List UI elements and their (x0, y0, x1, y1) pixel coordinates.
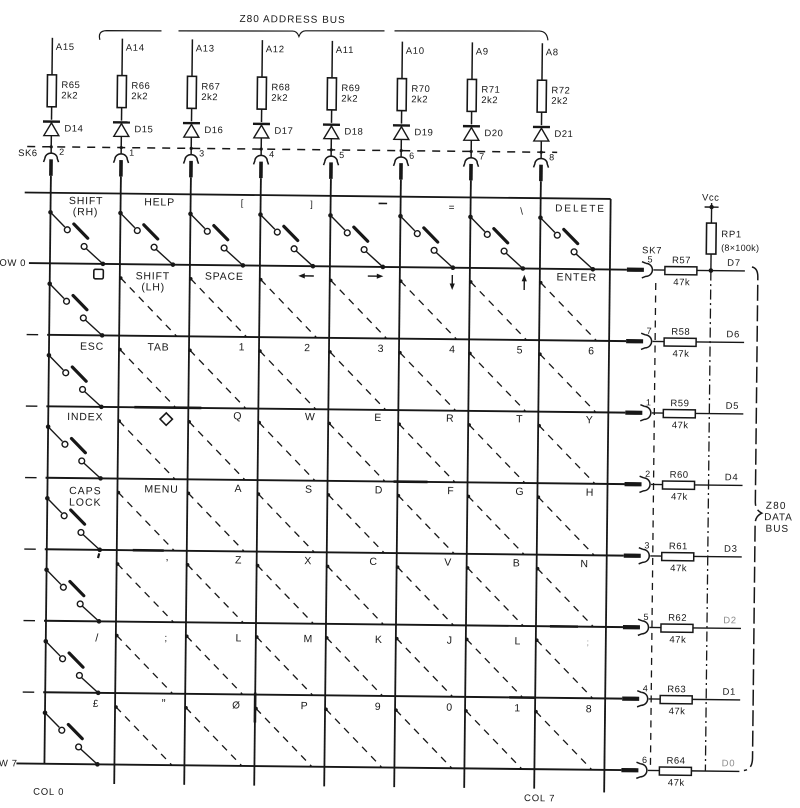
svg-text:1: 1 (239, 341, 246, 353)
svg-text:C: C (369, 556, 378, 568)
svg-text:R61: R61 (669, 541, 688, 552)
svg-text:R58: R58 (671, 327, 690, 338)
svg-text:SK6: SK6 (18, 148, 38, 159)
svg-text:N: N (580, 558, 589, 570)
svg-text:A8: A8 (546, 47, 559, 58)
svg-text:H: H (586, 487, 595, 499)
svg-text:Z80 ADDRESS BUS: Z80 ADDRESS BUS (239, 14, 345, 26)
svg-text:47k: 47k (671, 492, 688, 503)
svg-text:1: 1 (129, 148, 134, 158)
svg-text:CAPS: CAPS (69, 485, 102, 497)
svg-text:(RH): (RH) (73, 206, 98, 218)
svg-text:2: 2 (59, 147, 64, 157)
svg-text:47k: 47k (673, 277, 690, 288)
svg-text:T: T (516, 413, 523, 425)
svg-text:3: 3 (378, 343, 385, 355)
svg-text:P: P (301, 700, 309, 712)
svg-text:HELP: HELP (144, 196, 175, 208)
svg-text:]: ] (310, 199, 313, 209)
svg-text:F: F (447, 485, 454, 497)
svg-text:A15: A15 (56, 42, 75, 53)
svg-text:A14: A14 (126, 43, 145, 54)
svg-text:X: X (304, 555, 312, 567)
svg-text:R66: R66 (131, 81, 150, 92)
svg-text:D19: D19 (414, 127, 433, 138)
svg-text:A13: A13 (196, 43, 215, 54)
svg-text:B: B (513, 557, 521, 569)
svg-text:R64: R64 (666, 756, 685, 767)
svg-text:R67: R67 (201, 81, 220, 92)
svg-text:ESC: ESC (80, 341, 104, 353)
svg-text:6: 6 (588, 345, 595, 357)
svg-text:ENTER: ENTER (556, 271, 597, 283)
svg-text:RP1: RP1 (721, 229, 742, 240)
svg-text:DELETE: DELETE (555, 203, 606, 215)
svg-text:A12: A12 (266, 44, 285, 55)
svg-text:Q: Q (233, 410, 242, 422)
svg-text:ROW 7: ROW 7 (0, 758, 18, 769)
svg-text:R57: R57 (672, 255, 691, 266)
svg-text:D17: D17 (274, 126, 293, 137)
svg-text:LOCK: LOCK (69, 497, 102, 509)
svg-text:2k2: 2k2 (271, 93, 288, 104)
svg-text:2k2: 2k2 (61, 90, 78, 101)
svg-text:V: V (444, 557, 452, 569)
svg-text:R68: R68 (271, 82, 290, 93)
svg-text:8: 8 (549, 152, 554, 162)
svg-text:R60: R60 (670, 470, 689, 481)
svg-text:5: 5 (644, 612, 649, 622)
svg-text:9: 9 (375, 701, 382, 713)
svg-text:6: 6 (642, 755, 647, 765)
svg-text:D6: D6 (726, 329, 740, 340)
svg-text:E: E (374, 412, 382, 424)
svg-text:1: 1 (646, 397, 651, 407)
svg-text:R71: R71 (481, 85, 500, 96)
svg-text:D5: D5 (726, 401, 740, 412)
svg-text:5: 5 (517, 344, 524, 356)
svg-text:;: ; (164, 633, 167, 644)
svg-text:J: J (447, 635, 453, 647)
svg-text:K: K (375, 634, 383, 646)
svg-text:47k: 47k (668, 778, 685, 789)
svg-text:6: 6 (409, 151, 414, 161)
svg-text:4: 4 (643, 683, 648, 693)
svg-text:TAB: TAB (147, 341, 169, 353)
svg-text:D1: D1 (722, 687, 736, 698)
svg-text:7: 7 (647, 326, 652, 336)
svg-text:4: 4 (269, 149, 274, 159)
svg-text:A10: A10 (406, 46, 425, 57)
svg-text:3: 3 (644, 540, 649, 550)
svg-text:D7: D7 (727, 258, 741, 269)
svg-text:R69: R69 (341, 83, 360, 94)
svg-text:R: R (446, 413, 455, 425)
svg-text:A11: A11 (336, 45, 354, 56)
svg-text:0: 0 (446, 702, 453, 714)
svg-text:R63: R63 (667, 684, 686, 695)
svg-text:47k: 47k (670, 563, 687, 574)
svg-text:G: G (515, 486, 524, 498)
svg-text:D15: D15 (134, 124, 153, 135)
svg-text:D20: D20 (484, 128, 503, 139)
svg-text:47k: 47k (669, 635, 686, 646)
svg-text:3: 3 (199, 148, 204, 158)
svg-text:(8×100k): (8×100k) (721, 243, 759, 253)
svg-text:D18: D18 (344, 127, 363, 138)
svg-text:R72: R72 (551, 85, 570, 96)
svg-text:R62: R62 (668, 613, 687, 624)
svg-text:7: 7 (479, 152, 484, 162)
svg-text:INDEX: INDEX (67, 411, 103, 423)
svg-text:R70: R70 (411, 84, 430, 95)
svg-text:D4: D4 (725, 472, 739, 483)
svg-text:;: ; (586, 637, 589, 647)
svg-text:ROW 0: ROW 0 (0, 258, 26, 269)
svg-text:4: 4 (449, 344, 456, 356)
svg-text:2: 2 (304, 342, 311, 354)
svg-text:COL 7: COL 7 (524, 793, 555, 804)
svg-text:BUS: BUS (765, 524, 789, 535)
svg-text:=: = (449, 203, 455, 214)
svg-text:1: 1 (514, 702, 521, 714)
svg-text:DATA: DATA (764, 512, 793, 523)
svg-text:2k2: 2k2 (411, 94, 428, 105)
svg-text:Y: Y (586, 414, 594, 426)
svg-text:2k2: 2k2 (131, 91, 148, 102)
svg-text:(LH): (LH) (141, 281, 165, 293)
svg-text:2k2: 2k2 (341, 93, 358, 104)
svg-text:COL 0: COL 0 (33, 787, 64, 798)
svg-text:\: \ (520, 206, 523, 217)
svg-text:D2: D2 (723, 615, 737, 626)
svg-text:SPACE: SPACE (205, 271, 244, 283)
svg-text:A9: A9 (476, 46, 489, 57)
svg-text:Z: Z (235, 554, 242, 566)
svg-text:2k2: 2k2 (481, 95, 498, 106)
svg-text:A: A (234, 483, 242, 495)
svg-text:Ø: Ø (232, 700, 240, 711)
svg-text:D21: D21 (554, 129, 573, 140)
svg-text:D0: D0 (722, 758, 736, 769)
svg-text:L: L (514, 635, 521, 647)
svg-text:MENU: MENU (144, 483, 178, 495)
svg-text:R65: R65 (61, 80, 80, 91)
svg-text:£: £ (93, 699, 99, 710)
svg-text:”: ” (162, 697, 166, 711)
svg-text:8: 8 (586, 703, 593, 715)
svg-text:47k: 47k (672, 420, 689, 431)
svg-text:S: S (305, 484, 313, 496)
svg-text:5: 5 (339, 150, 344, 160)
svg-text:2k2: 2k2 (551, 96, 568, 107)
svg-text:D16: D16 (204, 125, 223, 136)
svg-text:,: , (165, 551, 168, 563)
svg-text:2k2: 2k2 (201, 92, 218, 103)
svg-text:R59: R59 (670, 398, 689, 409)
svg-text:D: D (375, 484, 384, 496)
svg-text:Z80: Z80 (766, 501, 787, 512)
svg-text:2: 2 (645, 469, 650, 479)
svg-text:47k: 47k (672, 349, 689, 360)
svg-text:M: M (303, 633, 313, 645)
svg-text:W: W (305, 411, 316, 423)
svg-text:5: 5 (647, 254, 652, 264)
svg-text:Vcc: Vcc (702, 192, 719, 203)
svg-text:L: L (235, 632, 242, 644)
svg-text:D14: D14 (64, 123, 83, 134)
svg-text:D3: D3 (724, 544, 738, 555)
svg-text:47k: 47k (669, 706, 686, 717)
